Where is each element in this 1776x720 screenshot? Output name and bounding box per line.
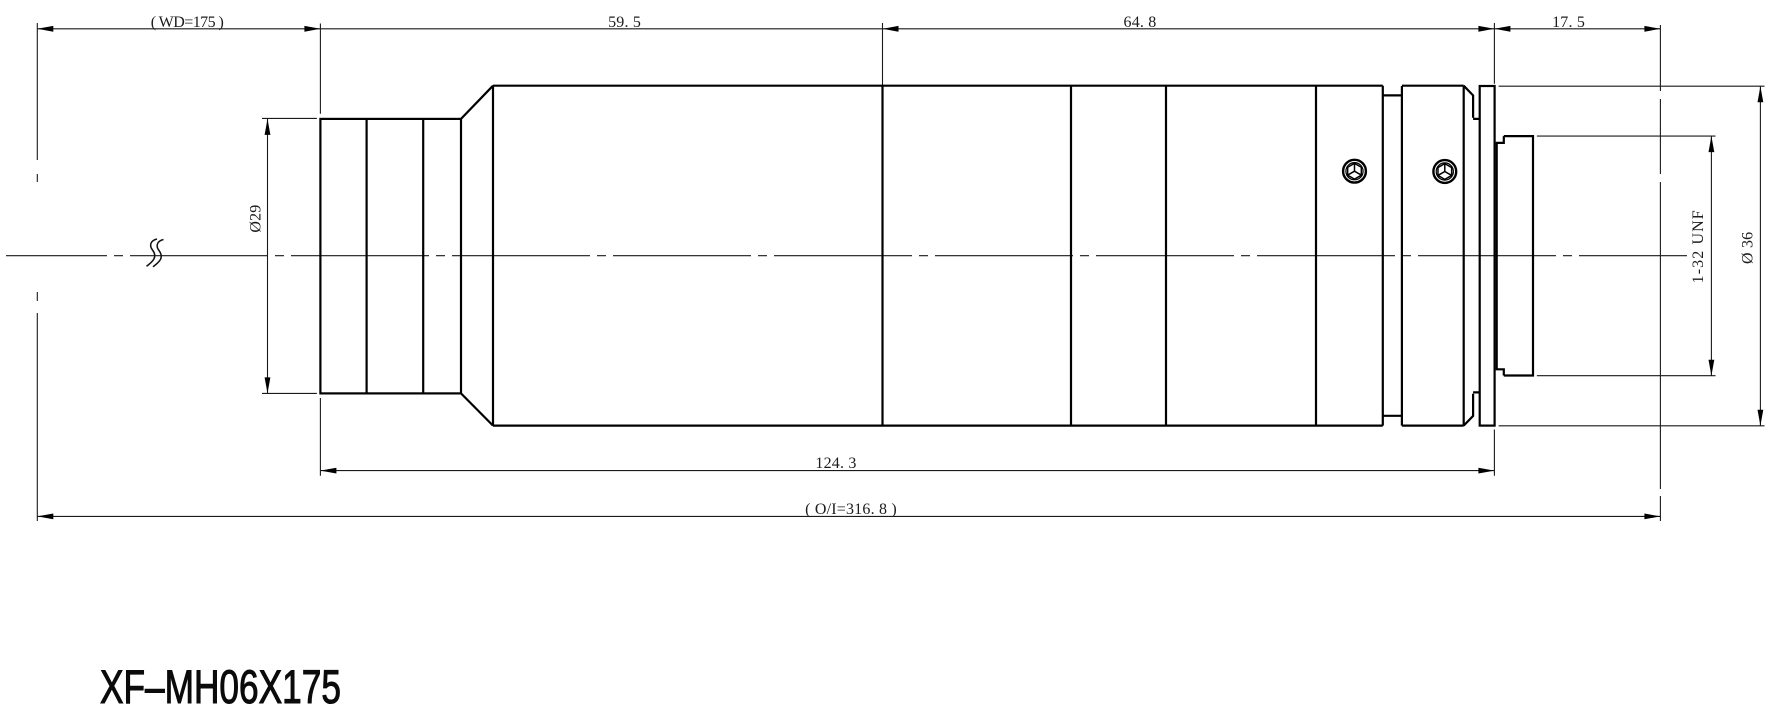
svg-text:17. 5: 17. 5 (1552, 14, 1585, 31)
svg-text:( O/I=316. 8 ): ( O/I=316. 8 ) (805, 501, 897, 518)
svg-text:XF–MH06X175: XF–MH06X175 (100, 660, 341, 713)
svg-text:Ø29: Ø29 (248, 205, 265, 233)
svg-text:124. 3: 124. 3 (815, 455, 856, 472)
svg-text:1-32 UNF: 1-32 UNF (1690, 209, 1707, 283)
svg-text:64. 8: 64. 8 (1124, 14, 1157, 31)
svg-text:( WD=175 ): ( WD=175 ) (151, 14, 224, 31)
svg-text:59. 5: 59. 5 (608, 14, 641, 31)
svg-text:Ø 36: Ø 36 (1739, 232, 1756, 264)
